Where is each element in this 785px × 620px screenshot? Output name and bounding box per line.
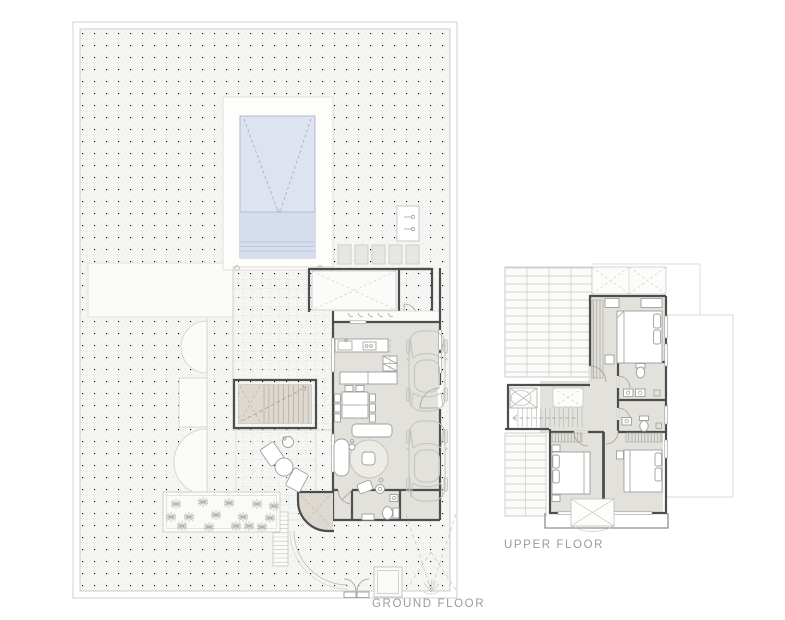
ground-floor-label: GROUND FLOOR [372, 598, 485, 610]
outdoor-shower [397, 206, 419, 241]
toilet [640, 421, 648, 432]
patio-table [275, 458, 293, 476]
covered-terrace [312, 271, 396, 310]
pool [240, 116, 315, 258]
louver-roof-left [505, 433, 546, 516]
sink [624, 389, 634, 397]
pool-area [223, 97, 333, 270]
ground-stairs [234, 380, 316, 428]
ground-floor-plan [73, 22, 457, 598]
terrace-skylight [592, 267, 666, 294]
master-wardrobe [592, 300, 603, 378]
lounge-chair [334, 439, 349, 476]
upper-floor-label: UPPER FLOOR [504, 539, 604, 551]
bedroom-2 [552, 445, 590, 502]
kitchen-island [340, 372, 397, 384]
planter-boxes [338, 245, 419, 264]
palm-planter [163, 492, 280, 532]
pouf [362, 452, 375, 465]
sink [390, 495, 398, 502]
plans-drawing [0, 0, 785, 620]
nightstand [605, 355, 614, 364]
sofa [352, 424, 392, 437]
floor-plan-sheet: GROUND FLOOR UPPER FLOOR [0, 0, 785, 620]
closet-bedroom-2 [552, 433, 582, 442]
sink [622, 418, 632, 426]
louver-roof-top [505, 267, 592, 377]
entry-hall [333, 311, 440, 322]
closet-bedroom-3 [626, 433, 662, 442]
upper-floor-plan [505, 264, 733, 532]
toilet [636, 367, 644, 378]
toilet [383, 507, 393, 520]
sink [636, 389, 646, 397]
utility-box [374, 567, 402, 597]
